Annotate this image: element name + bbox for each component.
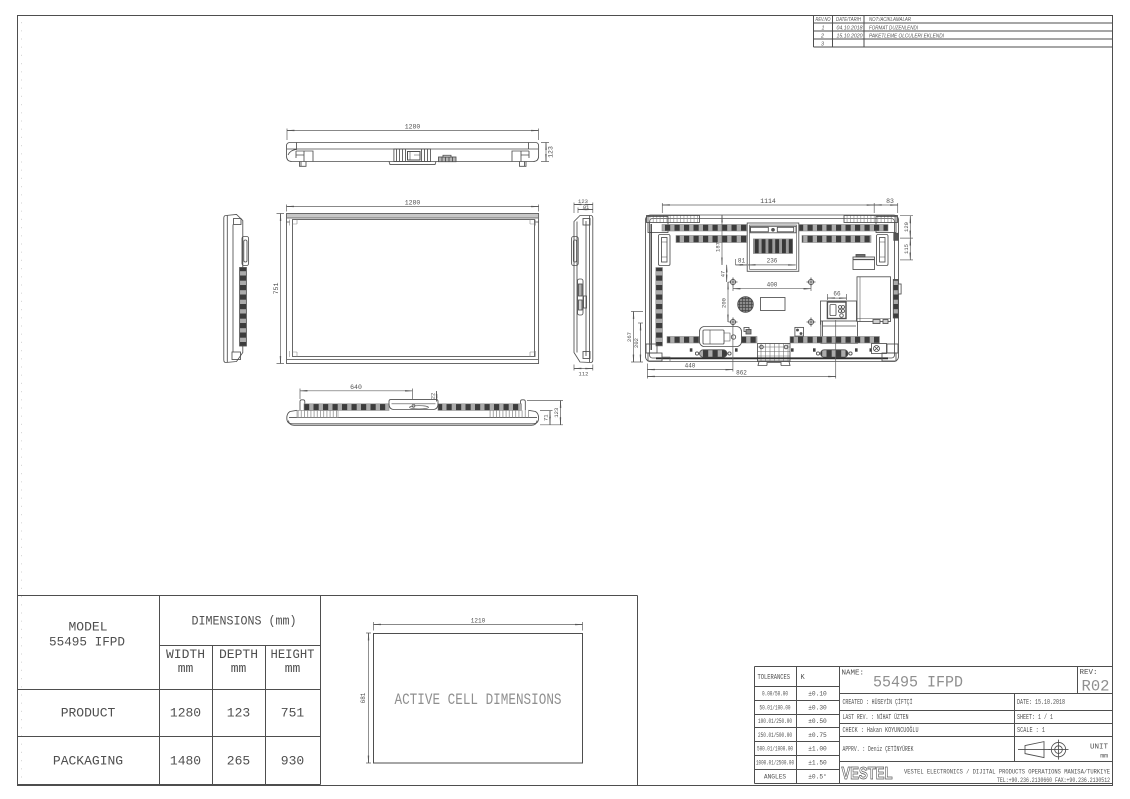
svg-text:681: 681: [360, 692, 367, 703]
svg-text:1280: 1280: [170, 706, 201, 721]
svg-text:VESTEL: VESTEL: [842, 763, 893, 783]
svg-text:R02: R02: [1082, 678, 1110, 696]
svg-text:3: 3: [821, 41, 824, 47]
svg-text:TOLERANCES: TOLERANCES: [758, 674, 791, 682]
svg-text:112: 112: [579, 371, 589, 378]
svg-text:NOT:/ACIKLAMALAR: NOT:/ACIKLAMALAR: [869, 17, 911, 23]
svg-text:500.01/1000.00: 500.01/1000.00: [757, 746, 793, 753]
svg-text:123: 123: [227, 706, 250, 721]
svg-text:ANGLES: ANGLES: [764, 773, 787, 780]
svg-text:mm: mm: [178, 661, 194, 676]
svg-text:mm: mm: [231, 661, 247, 676]
svg-text:1210: 1210: [471, 618, 486, 625]
svg-text:LAST REV. : NİHAT ÜZTEN: LAST REV. : NİHAT ÜZTEN: [843, 713, 909, 722]
svg-text:115: 115: [903, 244, 910, 254]
svg-text:PACKAGING: PACKAGING: [53, 754, 123, 769]
svg-text:91: 91: [583, 204, 590, 211]
svg-text:55495 IFPD: 55495 IFPD: [49, 635, 125, 650]
svg-text:236: 236: [767, 257, 778, 264]
svg-text:55495 IFPD: 55495 IFPD: [873, 674, 963, 692]
svg-text:71: 71: [542, 414, 549, 421]
svg-text:751: 751: [273, 283, 280, 295]
svg-text:APPRV. : Deniz ÇETİNYÜREK: APPRV. : Deniz ÇETİNYÜREK: [843, 745, 914, 754]
svg-text:1000.01/2500.00: 1000.01/2500.00: [756, 760, 794, 767]
svg-text:100.01/250.00: 100.01/250.00: [758, 718, 792, 725]
svg-text:mm: mm: [1100, 753, 1108, 760]
svg-text:66: 66: [833, 291, 841, 298]
svg-text:640: 640: [350, 384, 362, 391]
svg-text:50.01/100.00: 50.01/100.00: [760, 704, 791, 711]
svg-text:47: 47: [719, 271, 726, 278]
svg-text:±0.50: ±0.50: [808, 718, 827, 725]
svg-text:187: 187: [715, 242, 722, 252]
svg-text:250.01/500.00: 250.01/500.00: [758, 732, 792, 739]
svg-text:1: 1: [822, 25, 825, 31]
svg-text:1280: 1280: [405, 124, 421, 131]
svg-text:22: 22: [430, 393, 437, 400]
svg-text:±1.00: ±1.00: [808, 746, 827, 753]
svg-text:±0.75: ±0.75: [808, 732, 827, 739]
svg-text:83: 83: [886, 198, 894, 205]
svg-text:PRODUCT: PRODUCT: [61, 706, 116, 721]
svg-text:VESTEL ELECTRONICS / DIJITAL P: VESTEL ELECTRONICS / DIJITAL PRODUCTS OP…: [904, 769, 1110, 776]
svg-text:1480: 1480: [170, 754, 201, 769]
svg-text:mm: mm: [285, 661, 301, 676]
svg-text:UNIT: UNIT: [1090, 744, 1109, 752]
svg-text:±0.10: ±0.10: [808, 691, 827, 698]
svg-text:440: 440: [685, 363, 696, 370]
svg-text:1280: 1280: [405, 200, 421, 207]
svg-text:PAKETLEME OLCULERI EKLENDI: PAKETLEME OLCULERI EKLENDI: [869, 33, 944, 39]
svg-text:DIMENSIONS (mm): DIMENSIONS (mm): [192, 614, 297, 629]
svg-text:200: 200: [721, 298, 728, 308]
svg-text:2: 2: [820, 33, 824, 39]
svg-text:FORMAT DUZENLENDI: FORMAT DUZENLENDI: [869, 25, 918, 31]
svg-text:TEL:+90.236.2130660 FAX:+90.23: TEL:+90.236.2130660 FAX:+90.236.2130512: [997, 777, 1110, 784]
svg-text:202: 202: [633, 338, 640, 348]
svg-text:862: 862: [736, 369, 747, 376]
svg-text:120: 120: [903, 222, 910, 232]
svg-text:HEIGHT: HEIGHT: [271, 647, 315, 662]
svg-text:267: 267: [626, 332, 633, 342]
svg-text:REV:: REV:: [1080, 669, 1098, 677]
svg-text:±0.5°: ±0.5°: [808, 773, 827, 780]
svg-text:±0.30: ±0.30: [808, 704, 827, 711]
svg-text:REV.NO: REV.NO: [816, 17, 831, 23]
svg-text:CREATED : HÜSEYİN ÇİFTÇİ: CREATED : HÜSEYİN ÇİFTÇİ: [843, 698, 913, 707]
svg-text:0.00/50.00: 0.00/50.00: [762, 691, 788, 698]
svg-text:±1.50: ±1.50: [808, 760, 827, 767]
svg-text:265: 265: [227, 754, 250, 769]
svg-text:SHEET: 1 / 1: SHEET: 1 / 1: [1017, 714, 1053, 722]
svg-text:CHECK : Hakan KOYUNCUOĞLU: CHECK : Hakan KOYUNCUOĞLU: [843, 725, 919, 735]
svg-text:81: 81: [738, 257, 746, 264]
svg-text:DATE/TARIH: DATE/TARIH: [836, 17, 861, 23]
svg-text:751: 751: [281, 706, 305, 721]
svg-text:MODEL: MODEL: [68, 620, 107, 635]
svg-text:SCALE : 1: SCALE : 1: [1017, 727, 1045, 735]
svg-text:ACTIVE CELL DIMENSIONS: ACTIVE CELL DIMENSIONS: [395, 691, 562, 709]
svg-text:DEPTH: DEPTH: [219, 647, 258, 662]
svg-text:NAME:: NAME:: [842, 670, 865, 678]
svg-text:DATE: 15.10.2018: DATE: 15.10.2018: [1017, 699, 1065, 707]
svg-text:04.10.2018: 04.10.2018: [837, 25, 863, 31]
svg-text:123: 123: [548, 146, 555, 158]
svg-text:1114: 1114: [760, 198, 776, 205]
svg-text:123: 123: [553, 408, 560, 418]
svg-text:WIDTH: WIDTH: [166, 647, 205, 662]
svg-text:400: 400: [767, 281, 778, 288]
svg-text:930: 930: [281, 754, 304, 769]
svg-text:15.10.2020: 15.10.2020: [837, 33, 863, 39]
